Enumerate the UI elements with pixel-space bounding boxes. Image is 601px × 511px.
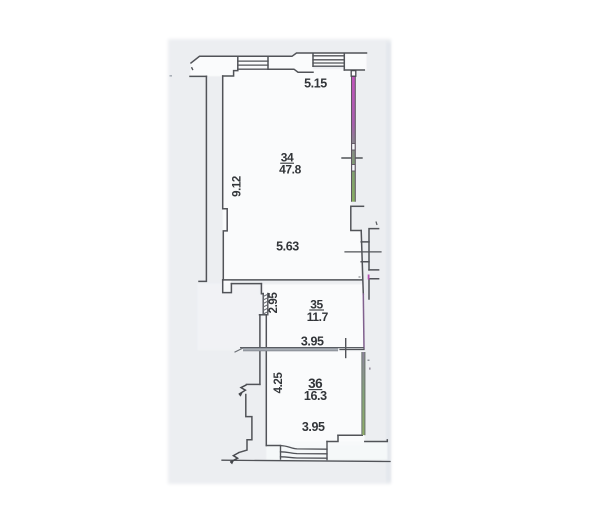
- svg-text:2.95: 2.95: [268, 292, 280, 314]
- svg-text:9.12: 9.12: [232, 176, 244, 197]
- svg-text:5.15: 5.15: [304, 77, 327, 91]
- svg-text:47.8: 47.8: [279, 163, 301, 177]
- svg-text:3.95: 3.95: [301, 335, 324, 349]
- svg-text:3.95: 3.95: [302, 420, 325, 434]
- svg-text:5.63: 5.63: [276, 240, 299, 254]
- svg-text:11.7: 11.7: [307, 310, 329, 324]
- svg-text:4.25: 4.25: [273, 372, 285, 394]
- svg-text:16.3: 16.3: [304, 389, 327, 403]
